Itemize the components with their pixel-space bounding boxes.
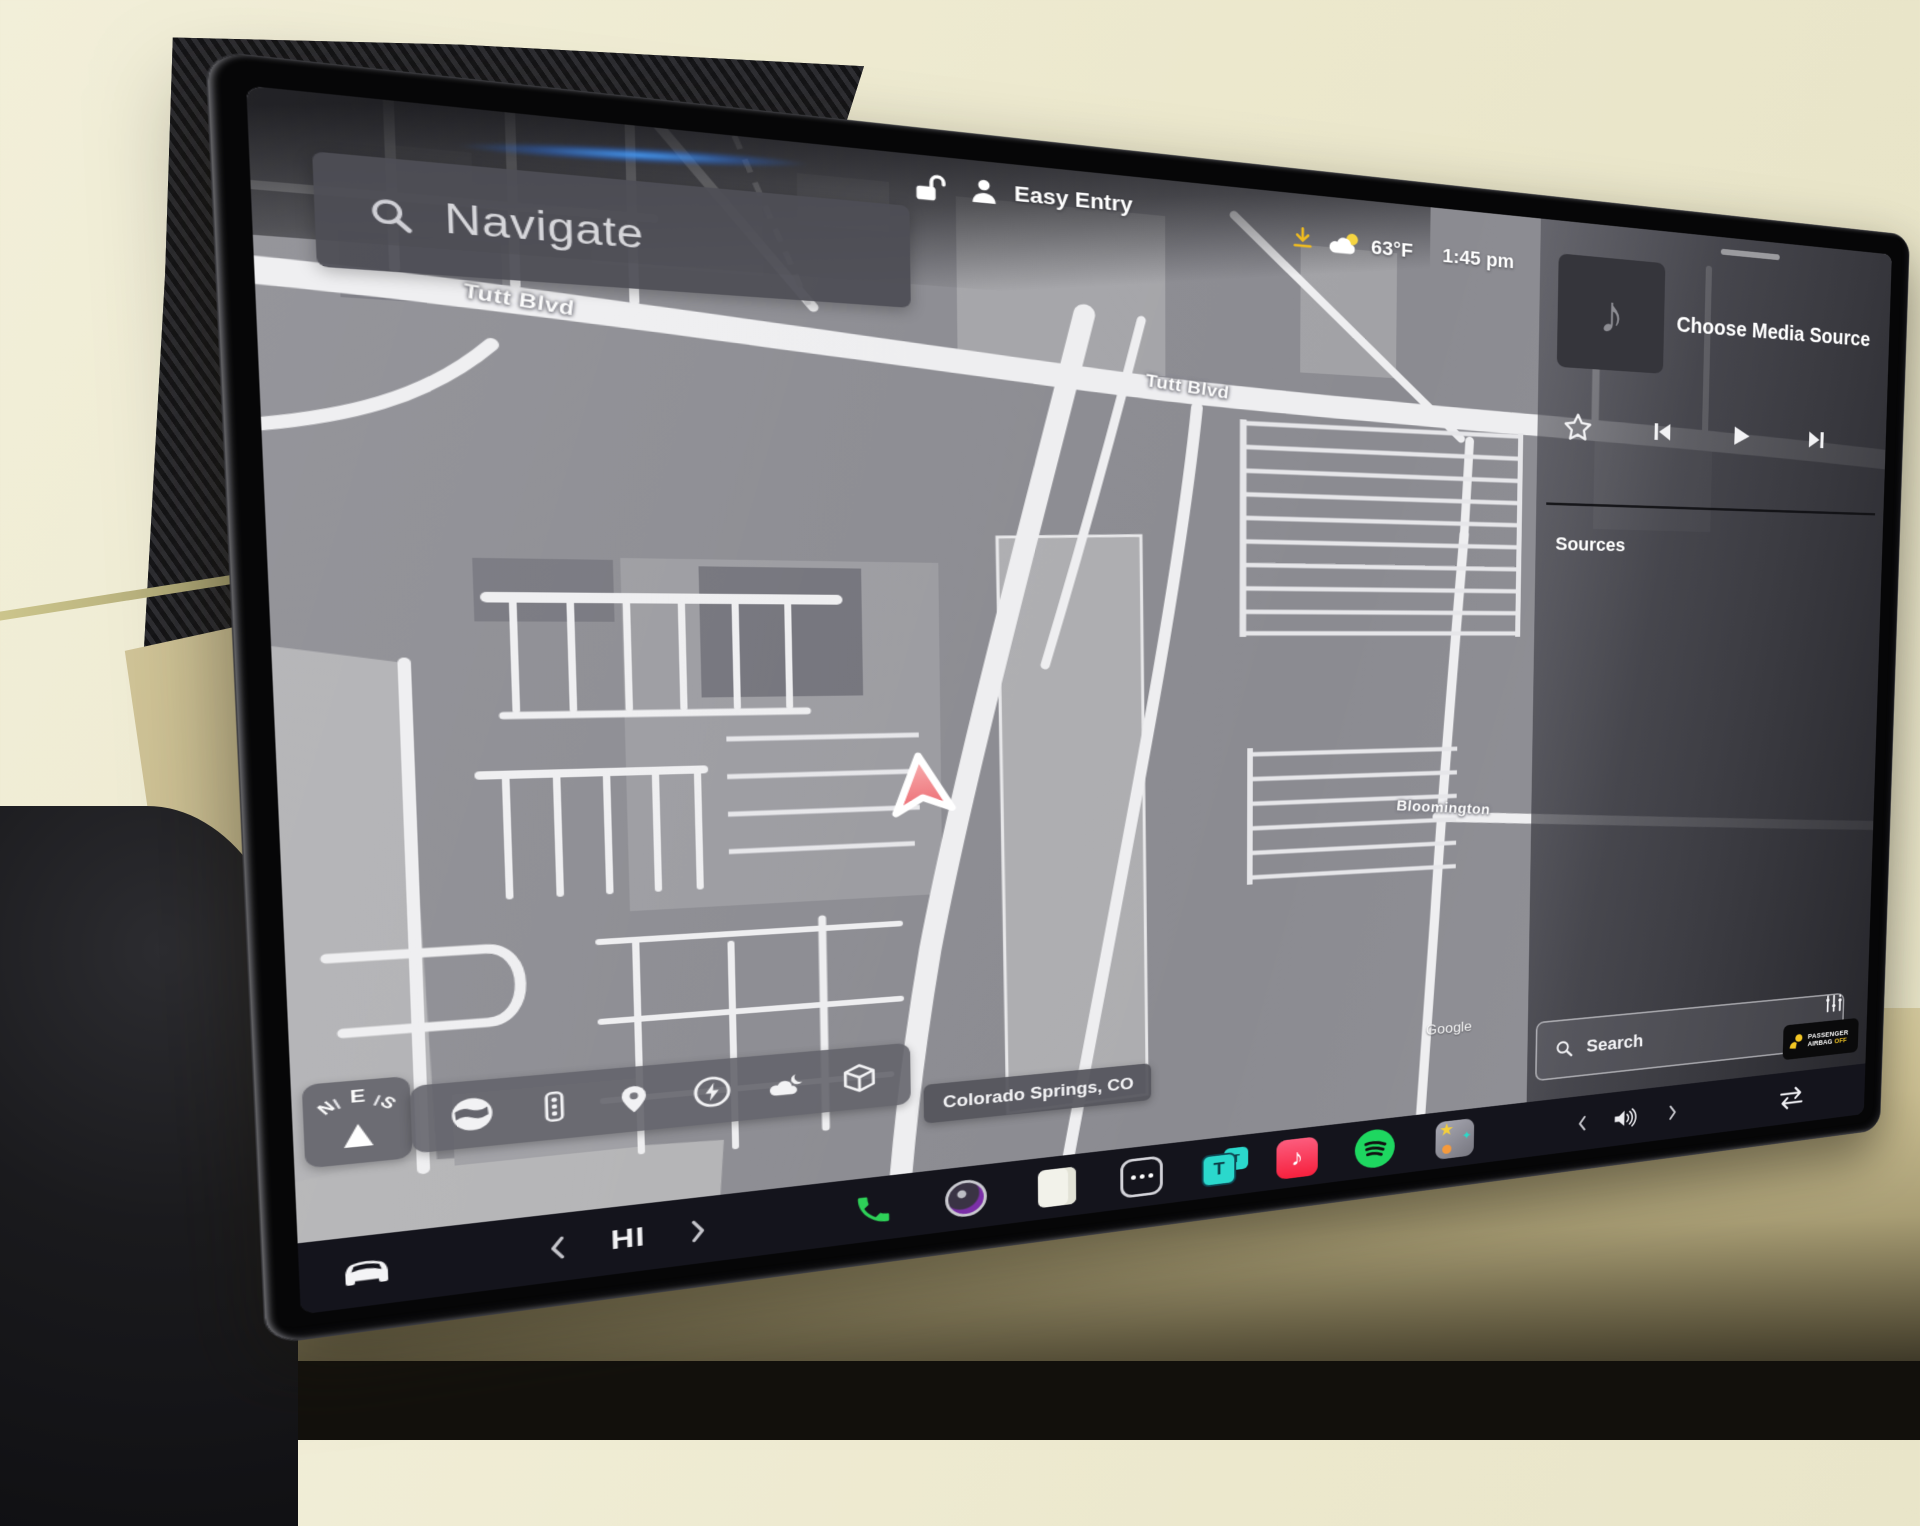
media-controls — [1562, 408, 1828, 458]
speaker-icon — [1612, 1105, 1639, 1130]
spotify-icon — [1355, 1127, 1395, 1170]
airbag-icon — [1787, 1032, 1804, 1052]
compass-heading-pointer — [343, 1123, 373, 1149]
volume-down-button[interactable] — [1570, 1095, 1593, 1152]
media-search-placeholder: Search — [1586, 1031, 1643, 1057]
weather-layer-icon[interactable] — [766, 1066, 807, 1104]
search-icon — [1555, 1038, 1574, 1059]
climate-temp-value: HI — [610, 1222, 646, 1256]
charging-bolt-icon[interactable] — [690, 1073, 733, 1112]
compass-widget[interactable]: N E S — [302, 1076, 413, 1169]
media-panel: ♪ Choose Media Source Sources Search — [1527, 219, 1892, 1103]
temp-down-button[interactable] — [539, 1212, 576, 1284]
swap-arrows-icon — [1778, 1084, 1805, 1111]
apple-music-app[interactable]: ♪ — [1276, 1126, 1318, 1189]
weather-cloud-icon — [1325, 229, 1364, 258]
traffic-light-icon[interactable] — [532, 1087, 578, 1127]
airbag-status: OFF — [1834, 1036, 1847, 1045]
media-divider — [1546, 502, 1875, 515]
map-style-globe-icon[interactable] — [448, 1094, 496, 1135]
chevron-left-icon — [1577, 1115, 1587, 1132]
notes-icon — [1038, 1166, 1076, 1208]
compass-e: E — [350, 1086, 366, 1108]
unlock-icon[interactable] — [913, 170, 949, 205]
camera-lens-icon — [945, 1177, 987, 1218]
chevron-right-icon — [688, 1218, 707, 1243]
spotify-app[interactable] — [1355, 1117, 1395, 1179]
software-update-download-icon[interactable] — [1289, 224, 1315, 252]
toybox-app[interactable]: ★ ✦ — [1435, 1108, 1474, 1169]
chevron-left-icon — [547, 1235, 568, 1261]
climate-temp-display[interactable]: HI — [587, 1201, 668, 1277]
airbag-line2: AIRBAG — [1808, 1038, 1833, 1048]
volume-up-button[interactable] — [1661, 1084, 1683, 1140]
apple-music-icon: ♪ — [1276, 1136, 1318, 1180]
play-button[interactable] — [1728, 422, 1753, 449]
3d-cube-icon[interactable] — [839, 1059, 879, 1096]
profile-person-icon — [966, 173, 1001, 208]
more-dots-icon — [1120, 1155, 1163, 1198]
chevron-right-icon — [1667, 1104, 1677, 1121]
media-swap-button[interactable] — [1775, 1070, 1807, 1125]
search-icon — [367, 194, 415, 236]
audio-settings-sliders-icon[interactable] — [1823, 991, 1844, 1015]
volume-speaker[interactable] — [1608, 1089, 1643, 1147]
map-pin-icon[interactable] — [612, 1079, 656, 1118]
vehicle-controls-button[interactable] — [333, 1232, 400, 1310]
music-note-icon: ♪ — [1599, 283, 1625, 345]
sources-heading: Sources — [1555, 533, 1625, 556]
album-art-placeholder[interactable]: ♪ — [1557, 253, 1666, 373]
center-touchscreen: Tutt Blvd Tutt Blvd Bloomington Google N… — [205, 50, 1910, 1345]
previous-track-button[interactable] — [1650, 419, 1674, 445]
outside-temperature: 63°F — [1371, 236, 1413, 263]
tesla-app-icon: T T — [1202, 1144, 1249, 1189]
favorite-star-button[interactable] — [1562, 411, 1594, 445]
phone-app[interactable] — [849, 1175, 898, 1244]
navigate-placeholder: Navigate — [444, 196, 645, 258]
notes-app[interactable] — [1035, 1154, 1080, 1221]
all-apps-button[interactable] — [1118, 1144, 1164, 1210]
panel-drag-handle[interactable] — [1721, 249, 1780, 261]
temp-up-button[interactable] — [681, 1196, 715, 1266]
tesla-media-app[interactable]: T T — [1201, 1134, 1249, 1199]
toybox-icon: ★ ✦ — [1435, 1118, 1474, 1160]
car-icon — [334, 1250, 399, 1292]
screen-ui: Tutt Blvd Tutt Blvd Bloomington Google N… — [246, 86, 1892, 1315]
dashcam-app[interactable] — [943, 1164, 990, 1232]
media-source-title: Choose Media Source — [1676, 313, 1870, 352]
phone-icon — [853, 1189, 895, 1229]
next-track-button[interactable] — [1805, 427, 1827, 452]
passenger-airbag-status-badge: PASSENGER AIRBAGOFF — [1783, 1018, 1859, 1060]
